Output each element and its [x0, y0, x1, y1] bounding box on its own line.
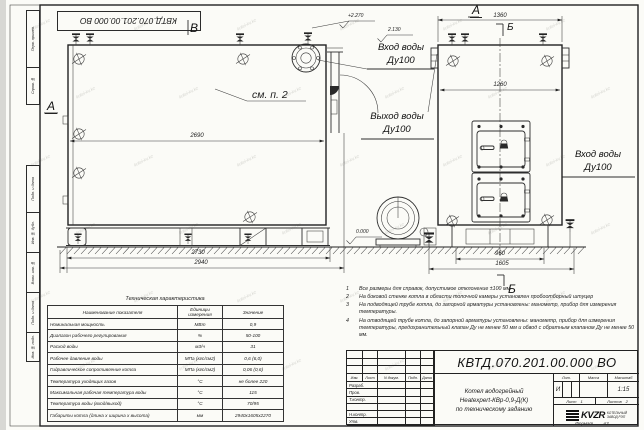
lit-value: И: [554, 382, 563, 398]
signature-row-cell: [406, 411, 421, 418]
spec-row: Габариты котла (длина х ширина х высота)…: [48, 410, 284, 421]
signature-row-label: Пров.: [347, 389, 378, 396]
section-label-b-top: Б: [507, 22, 514, 33]
revision-cell: [378, 366, 406, 374]
note-text: На отводящей трубе котла, до запорной ар…: [359, 318, 636, 339]
scale-header: Масштаб: [608, 374, 639, 382]
spec-cell: МПа (кгс/см2): [178, 353, 223, 364]
margin-cell: Инв. № дубл.: [26, 213, 40, 253]
signature-row-cell: [406, 397, 421, 404]
title-block: Изм.ЛистN докум.Подп.Дата Разраб.Пров.Т.…: [346, 350, 638, 425]
note-number: 4: [344, 318, 359, 339]
signature-row-label: [347, 404, 378, 411]
spec-cell: Расход воды: [48, 341, 178, 352]
spec-cell: 0,6 (6,0): [223, 353, 284, 364]
note-item: 2На боковой стенке котла в области топоч…: [344, 294, 636, 301]
margin-labels-bottom: Подп. и датаИнв. № дубл.Взам. инв. №Подп…: [26, 165, 40, 362]
elevation-top: +2.270: [348, 13, 363, 19]
title-header-cell: Подп.: [406, 374, 421, 382]
revision-cell: [421, 359, 434, 367]
inlet-flange: [292, 44, 320, 72]
lit-header: Лит.: [554, 374, 580, 382]
dim-1260: 1260: [480, 82, 520, 88]
document-name: Котел водогрейный Heatexpert-КВр-0,9-Д(К…: [434, 374, 554, 426]
margin-cell-label: Взам. инв. №: [31, 261, 35, 284]
notes-list: 1Все размеры для справок, допустимое отк…: [344, 286, 636, 340]
spec-cell: Температура уходящих газов: [48, 375, 178, 386]
sheets-label: Листов: [607, 399, 622, 404]
spec-cell: °С: [178, 398, 223, 409]
spec-cell: Гидравлическое сопротивление котла: [48, 364, 178, 375]
view-label-b: В: [190, 21, 198, 35]
signature-row-label: Утв.: [347, 418, 378, 425]
note-number: 1: [344, 286, 359, 293]
dim-2690: 2690: [174, 133, 220, 139]
revision-cell: [378, 359, 406, 367]
spec-row: Температура воды (вход/выход)°С70/95: [48, 398, 284, 409]
signature-row-label: Н.контр.: [347, 411, 378, 418]
signature-row-cell: [378, 418, 406, 425]
dim-2730: 2730: [175, 250, 221, 256]
signature-row-cell: [378, 411, 406, 418]
signature-row-cell: [421, 418, 434, 425]
signature-row-cell: [421, 397, 434, 404]
lower-door: [472, 173, 530, 222]
signature-row-cell: [421, 382, 434, 389]
format-label: Формат: [575, 421, 593, 426]
spec-cell: МВт: [178, 319, 223, 330]
upper-door: [472, 121, 530, 172]
dim-960: 960: [480, 251, 520, 257]
signature-row: Разраб.: [347, 382, 434, 389]
spec-row: Гидравлическое сопротивление котлаМПа (к…: [48, 364, 284, 375]
margin-cell: Подп. и дата: [26, 293, 40, 333]
lit-mass-scale-headers: Лит. Масса Масштаб: [554, 374, 639, 382]
spec-cell: 50-100: [223, 330, 284, 341]
note-item: 3На подводящей трубе котла, до запорной …: [344, 302, 636, 316]
revision-cell: [406, 351, 421, 359]
outlet-label-line2: Ду100: [360, 123, 434, 136]
signature-row-cell: [378, 389, 406, 396]
sheets-cell: Листов 2: [596, 398, 639, 405]
inlet-label-right: Вход воды Ду100: [561, 148, 635, 174]
signature-row: Пров.: [347, 389, 434, 396]
signature-row: Н.контр.: [347, 411, 434, 418]
title-header-cell: Дата: [421, 374, 434, 382]
margin-cell-label: Инв. № подл.: [31, 335, 35, 358]
outlet-label: Выход воды Ду100: [360, 110, 434, 136]
sheet-value: 1: [581, 399, 583, 404]
spec-header-cell: Наименование показателя: [48, 306, 178, 319]
spec-header-cell: Значение: [223, 306, 284, 319]
margin-cell-label: Перв. примен.: [31, 26, 35, 51]
margin-cell-label: Подп. и дата: [31, 177, 35, 201]
signature-row-cell: [378, 404, 406, 411]
sheet-label: Лист: [566, 399, 576, 404]
spec-row: Максимальная рабочая температура воды°С1…: [48, 387, 284, 398]
fan-blower: [376, 197, 436, 247]
note-text: На боковой стенке котла в области топочн…: [359, 294, 636, 301]
signature-row: [347, 404, 434, 411]
mass-header: Масса: [580, 374, 608, 382]
lit-mass-scale-values: И 1:15: [554, 382, 639, 398]
revision-grid: [347, 351, 434, 374]
signature-row-label: Т.контр.: [347, 397, 378, 404]
dim-1605: 1605: [482, 261, 522, 267]
spec-table: Наименование показателяЕдиницы измерения…: [47, 305, 284, 422]
spec-cell: Номинальная мощность: [48, 319, 178, 330]
revision-cell: [363, 351, 378, 359]
spec-table-header-row: Наименование показателяЕдиницы измерения…: [48, 306, 284, 319]
lit-cell3: [572, 382, 580, 398]
see-note-label: см. п. 2: [252, 89, 288, 101]
view-label-a-left: А: [45, 99, 57, 114]
signature-row-cell: [421, 404, 434, 411]
spec-cell: Диапазон рабочего регулирования: [48, 330, 178, 341]
mass-value: [580, 382, 608, 398]
note-text: На подводящей трубе котла, до запорной а…: [359, 302, 636, 316]
margin-cell-label: Инв. № дубл.: [31, 221, 35, 244]
note-number: 3: [344, 302, 359, 316]
signature-row-cell: [406, 382, 421, 389]
margin-cell-label: Справ. №: [31, 77, 35, 94]
signature-row: Т.контр.: [347, 397, 434, 404]
note-text: Все размеры для справок, допустимое откл…: [359, 286, 636, 293]
margin-cell-label: Подп. и дата: [31, 301, 35, 325]
spec-cell: 0,9: [223, 319, 284, 330]
margin-cell: Инв. № подл.: [26, 333, 40, 362]
inlet-label-mid-line1: Вход воды: [368, 41, 434, 54]
spec-cell: не более 220: [223, 375, 284, 386]
document-name-line3: по техническому заданию: [456, 406, 532, 413]
spec-cell: МПа (кгс/см2): [178, 364, 223, 375]
spec-header-cell: Единицы измерения: [178, 306, 223, 319]
side-base: [66, 228, 330, 246]
spec-table-block: Техническая характеристика Наименование …: [47, 296, 283, 422]
rotated-designation-box: КВТД.070.201.00.000 ВО: [57, 11, 201, 31]
note-item: 1Все размеры для справок, допустимое отк…: [344, 286, 636, 293]
signature-row-cell: [406, 389, 421, 396]
spec-cell: 31: [223, 341, 284, 352]
spec-cell: 70/95: [223, 398, 284, 409]
revision-cell: [406, 359, 421, 367]
document-name-line2: Heatexpert-КВр-0,9-Д(К): [460, 397, 528, 404]
revision-cell: [347, 366, 363, 374]
spec-table-title: Техническая характеристика: [47, 296, 283, 302]
signature-row-cell: [378, 397, 406, 404]
spec-row: Диапазон рабочего регулирования%50-100: [48, 330, 284, 341]
margin-cell: Взам. инв. №: [26, 253, 40, 293]
margin-cell: Подп. и дата: [26, 165, 40, 213]
spec-cell: мм: [178, 410, 223, 421]
scale-value: 1:15: [608, 382, 639, 398]
spec-cell: %: [178, 330, 223, 341]
note-number: 2: [344, 294, 359, 301]
spec-row: Номинальная мощностьМВт0,9: [48, 319, 284, 330]
signature-row-cell: [406, 404, 421, 411]
format-note: Формат А3: [548, 419, 636, 428]
spec-cell: Рабочее давление воды: [48, 353, 178, 364]
inlet-label-right-line2: Ду100: [561, 161, 635, 174]
dim-1360: 1360: [480, 13, 520, 19]
revision-cell: [421, 366, 434, 374]
dim-2940: 2940: [178, 260, 224, 266]
outlet-label-line1: Выход воды: [360, 110, 434, 123]
spec-cell: Габариты котла (длина х ширина х высота): [48, 410, 178, 421]
revision-cell: [421, 351, 434, 359]
sheets-value: 2: [626, 399, 628, 404]
elevation-inlet: 2.130: [388, 27, 401, 33]
side-view: [44, 20, 344, 273]
signature-row-cell: [421, 411, 434, 418]
revision-cell: [347, 351, 363, 359]
spec-cell: 115: [223, 387, 284, 398]
signature-row-cell: [406, 418, 421, 425]
signature-rows: Разраб.Пров.Т.контр.Н.контр.Утв.: [347, 382, 434, 426]
spec-cell: Максимальная рабочая температура воды: [48, 387, 178, 398]
signature-row-label: Разраб.: [347, 382, 378, 389]
signature-row-cell: [378, 382, 406, 389]
lit-cell2: [563, 382, 572, 398]
title-header-cell: Лист: [363, 374, 378, 382]
title-header-cell: N докум.: [378, 374, 406, 382]
signature-row-cell: [421, 389, 434, 396]
title-header-cell: Изм.: [347, 374, 363, 382]
margin-labels-top: Перв. примен.Справ. №: [26, 10, 40, 105]
rotated-designation-text: КВТД.070.201.00.000 ВО: [80, 16, 177, 26]
title-block-header-row: Изм.ЛистN докум.Подп.Дата: [347, 374, 434, 382]
spec-cell: Температура воды (вход/выход): [48, 398, 178, 409]
document-designation: КВТД.070.201.00.000 ВО: [434, 351, 639, 374]
document-name-line1: Котел водогрейный: [465, 388, 524, 395]
spec-row: Расход водым3/ч31: [48, 341, 284, 352]
inlet-label-mid: Вход воды Ду100: [368, 41, 434, 67]
margin-cell: Справ. №: [26, 68, 40, 105]
inlet-label-right-line1: Вход воды: [561, 148, 635, 161]
elevation-floor: 0.000: [356, 229, 369, 235]
spec-row: Температура уходящих газов°Сне более 220: [48, 375, 284, 386]
revision-cell: [406, 366, 421, 374]
door-swing-arc: [340, 75, 378, 113]
spec-cell: °С: [178, 387, 223, 398]
inlet-label-mid-line2: Ду100: [368, 54, 434, 67]
spec-cell: °С: [178, 375, 223, 386]
revision-cell: [347, 359, 363, 367]
chimney-pipe: [327, 48, 343, 133]
drawing-sheet: { "watermark": { "text": "kotel-kv.kz" }…: [0, 0, 644, 430]
spec-cell: 2940х1605х2270: [223, 410, 284, 421]
spec-cell: м3/ч: [178, 341, 223, 352]
revision-cell: [363, 366, 378, 374]
margin-cell: Перв. примен.: [26, 10, 40, 68]
spec-row: Рабочее давление водыМПа (кгс/см2)0,6 (6…: [48, 353, 284, 364]
spec-cell: 0,06 (0,6): [223, 364, 284, 375]
revision-cell: [378, 351, 406, 359]
revision-cell: [363, 359, 378, 367]
front-view: [420, 16, 574, 286]
sheet-cell: Лист 1: [554, 398, 596, 405]
format-value: А3: [603, 421, 609, 426]
sheet-row: Лист 1 Листов 2: [554, 398, 639, 405]
note-item: 4На отводящей трубе котла, до запорной а…: [344, 318, 636, 339]
signature-row: Утв.: [347, 418, 434, 425]
